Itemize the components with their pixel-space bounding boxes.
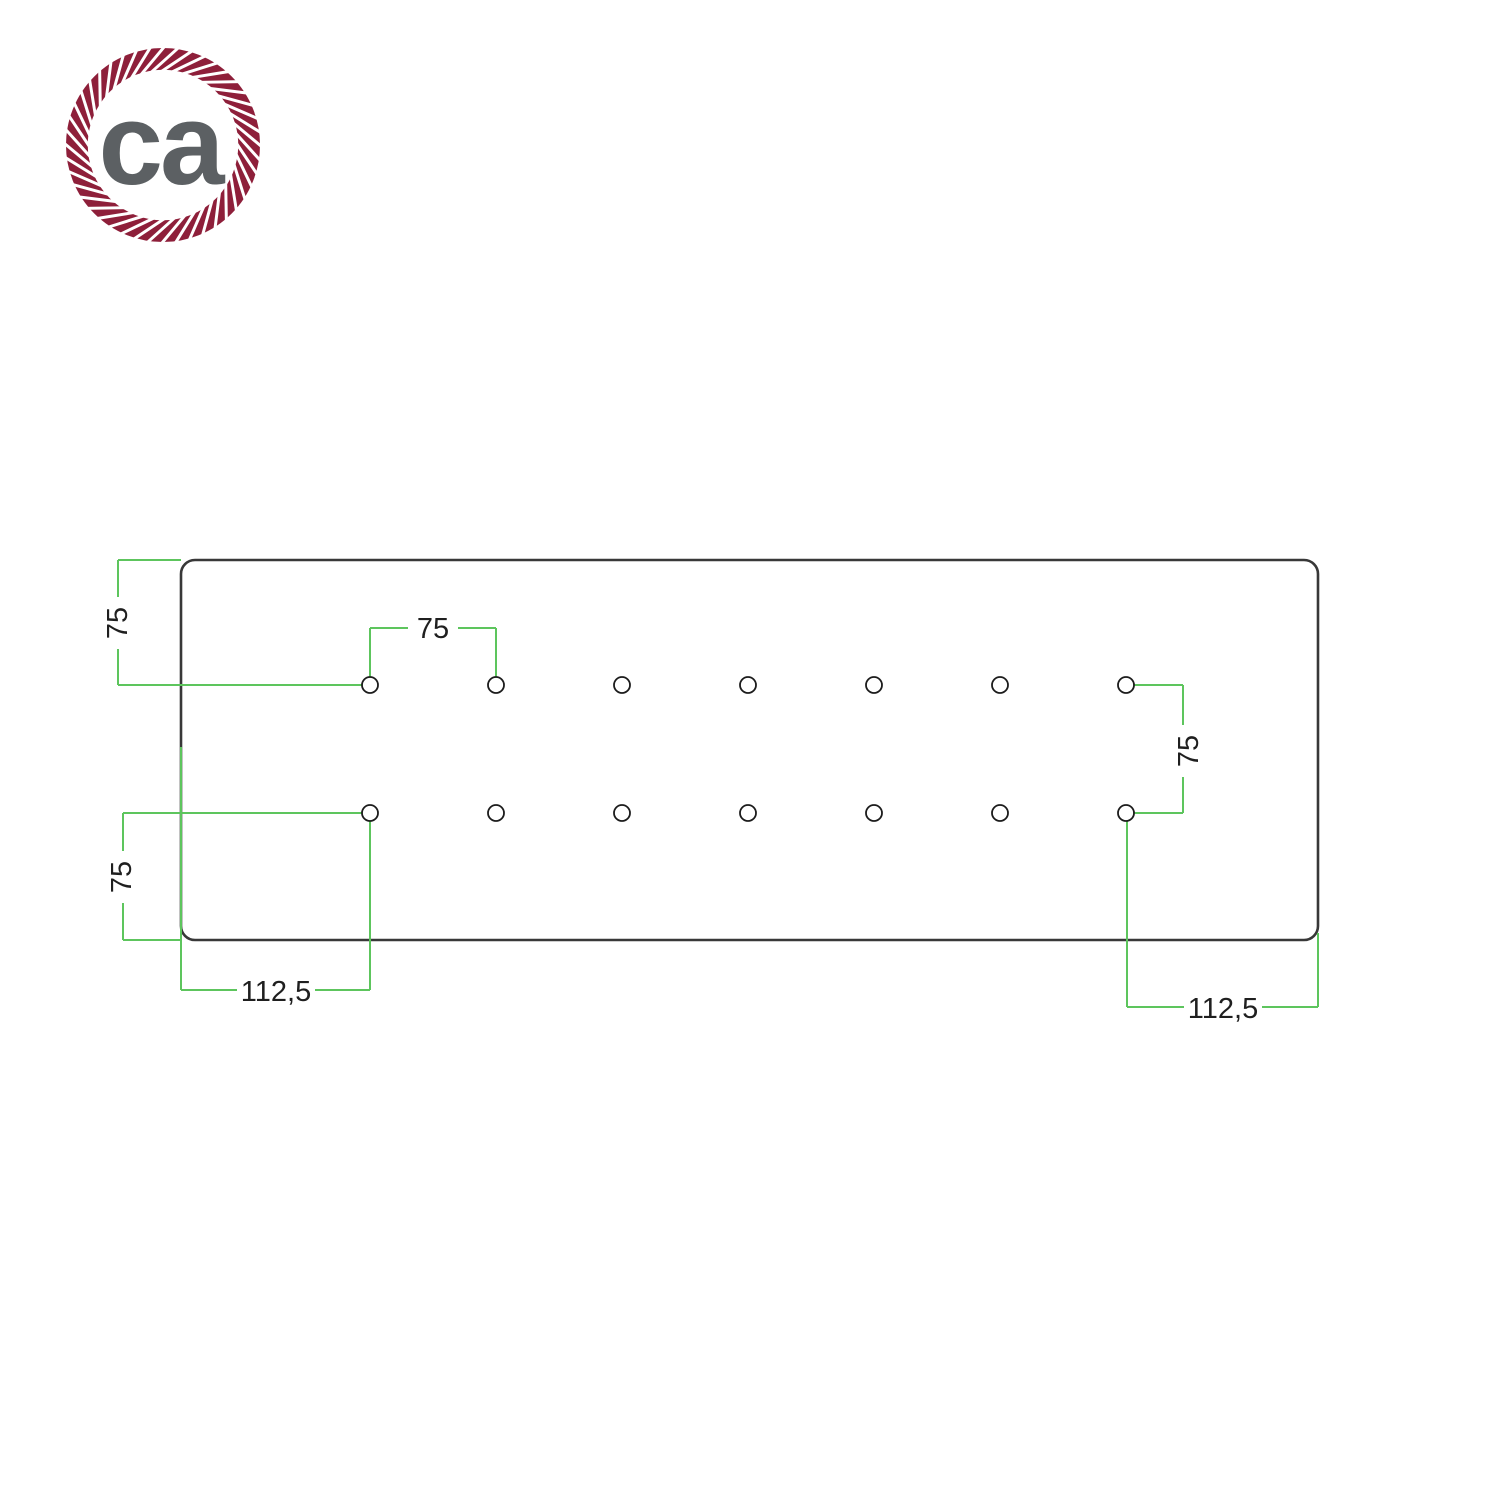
mounting-hole xyxy=(992,677,1008,693)
dim-label-top-hole-spacing: 75 xyxy=(417,613,449,645)
mounting-hole xyxy=(614,677,630,693)
mounting-hole xyxy=(740,805,756,821)
mounting-hole xyxy=(362,677,378,693)
mounting-hole xyxy=(866,805,882,821)
dim-label-bottom-left-offset: 112,5 xyxy=(241,976,311,1008)
mounting-hole xyxy=(1118,677,1134,693)
mounting-hole xyxy=(866,677,882,693)
mounting-hole xyxy=(488,677,504,693)
dim-label-bottom-left-vertical: 75 xyxy=(106,861,138,893)
dim-label-bottom-right-offset: 112,5 xyxy=(1188,993,1258,1025)
mounting-hole xyxy=(740,677,756,693)
mounting-hole xyxy=(488,805,504,821)
technical-drawing: 75 75 75 75 112,5 112,5 xyxy=(0,0,1500,1500)
mounting-hole xyxy=(614,805,630,821)
mounting-hole xyxy=(1118,805,1134,821)
mounting-hole xyxy=(362,805,378,821)
product-diagram-page: ca xyxy=(0,0,1500,1500)
plate-outline xyxy=(181,560,1318,940)
dim-label-right-row-spacing: 75 xyxy=(1173,735,1205,767)
dim-label-top-left-vertical: 75 xyxy=(102,607,134,639)
mounting-hole xyxy=(992,805,1008,821)
